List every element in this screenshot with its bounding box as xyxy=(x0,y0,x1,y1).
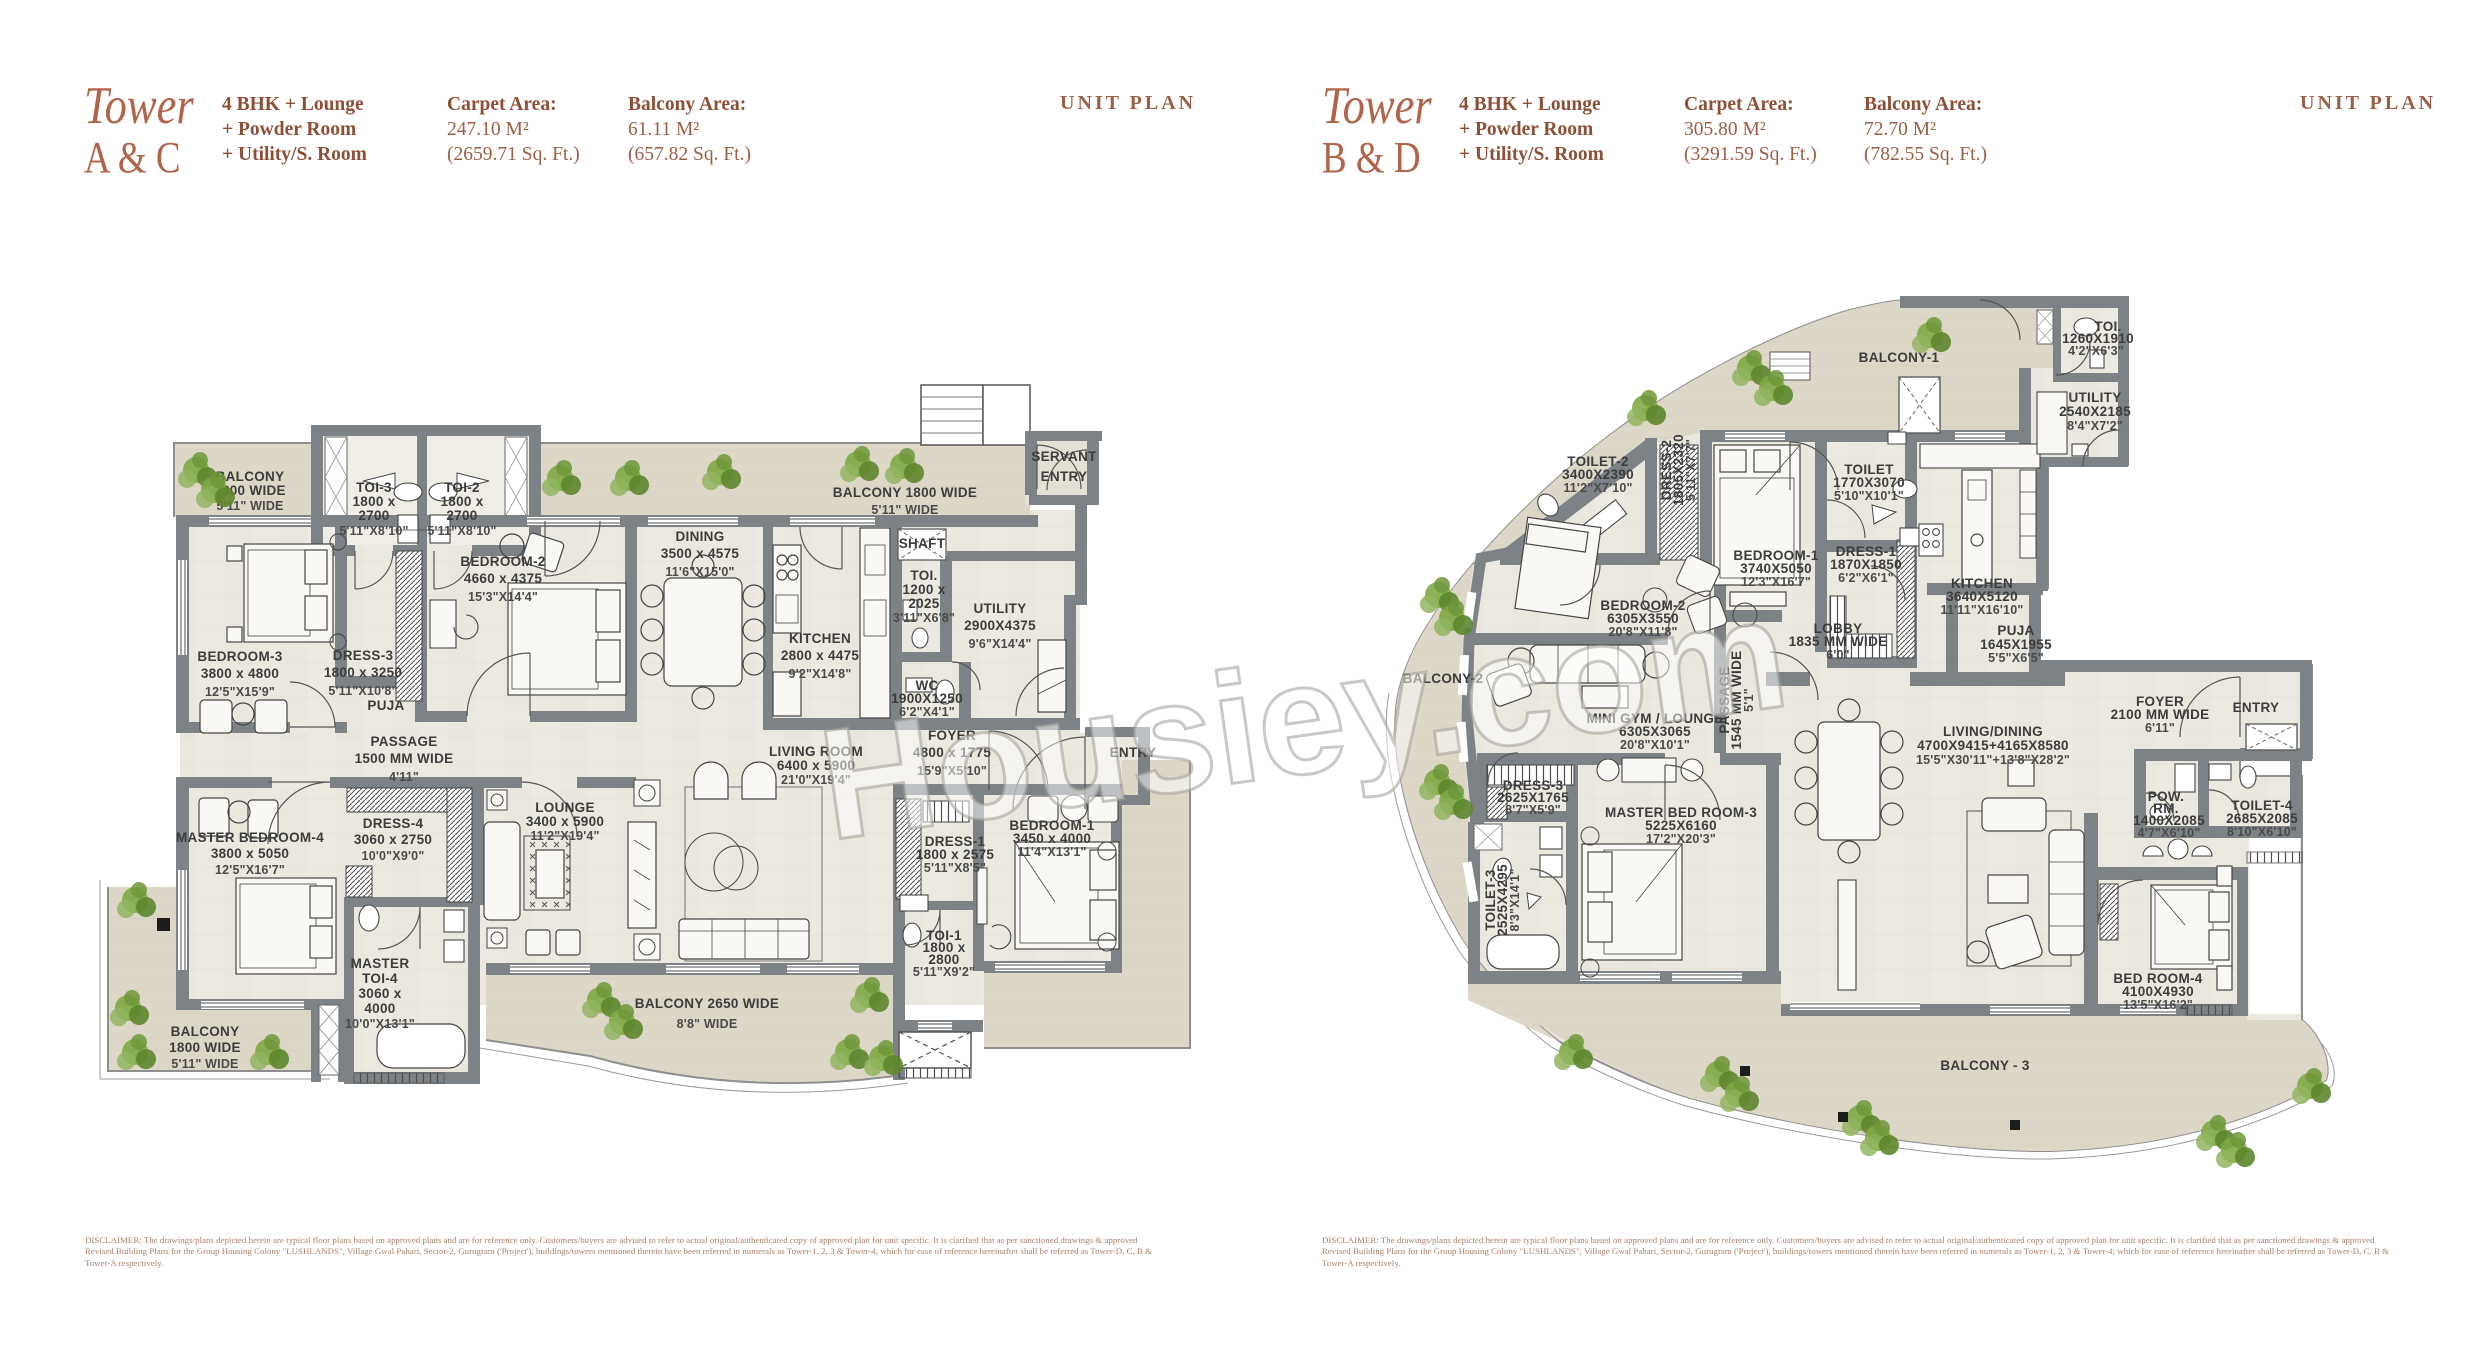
svg-text:MASTER: MASTER xyxy=(351,956,410,971)
svg-text:3800 x 4800: 3800 x 4800 xyxy=(201,666,279,681)
svg-text:1800 x: 1800 x xyxy=(352,494,395,509)
svg-text:10'0"X9'0": 10'0"X9'0" xyxy=(362,849,425,863)
svg-text:5'11"X8'5": 5'11"X8'5" xyxy=(924,861,986,875)
svg-text:1770X3070: 1770X3070 xyxy=(1833,475,1905,490)
svg-text:4'7"X6'10": 4'7"X6'10" xyxy=(2138,826,2201,840)
svg-text:5'11"X10'8": 5'11"X10'8" xyxy=(328,684,397,698)
svg-text:BALCONY: BALCONY xyxy=(171,1024,240,1039)
svg-text:2100 MM WIDE: 2100 MM WIDE xyxy=(2111,707,2210,722)
svg-text:4'2"X6'3": 4'2"X6'3" xyxy=(2068,344,2124,358)
svg-text:1870X1850: 1870X1850 xyxy=(1830,557,1902,572)
svg-text:2900X4375: 2900X4375 xyxy=(964,618,1036,633)
svg-text:4660 x 4375: 4660 x 4375 xyxy=(464,571,543,586)
svg-text:1835 MM WIDE: 1835 MM WIDE xyxy=(1789,634,1888,649)
svg-text:5'11"X8'10": 5'11"X8'10" xyxy=(339,524,408,538)
svg-text:6305X3065: 6305X3065 xyxy=(1619,724,1691,739)
svg-text:DINING: DINING xyxy=(675,529,724,544)
svg-text:2800 x 4475: 2800 x 4475 xyxy=(781,648,860,663)
svg-text:2700: 2700 xyxy=(358,508,389,523)
svg-text:1800 x 2575: 1800 x 2575 xyxy=(916,847,995,862)
svg-text:BALCONY 2650 WIDE: BALCONY 2650 WIDE xyxy=(635,996,779,1011)
svg-text:4100X4930: 4100X4930 xyxy=(2122,984,2194,999)
svg-text:5'10"X10'1": 5'10"X10'1" xyxy=(1834,489,1904,503)
svg-text:12'5"X15'9": 12'5"X15'9" xyxy=(205,685,275,699)
svg-text:12'5"X16'7": 12'5"X16'7" xyxy=(215,863,285,877)
svg-text:6'2"X6'1": 6'2"X6'1" xyxy=(1838,571,1894,585)
svg-text:ENTRY: ENTRY xyxy=(1041,469,1088,484)
svg-text:5'11" WIDE: 5'11" WIDE xyxy=(171,1057,238,1071)
svg-text:TOI-4: TOI-4 xyxy=(362,971,398,986)
svg-text:BALCONY - 3: BALCONY - 3 xyxy=(1940,1058,2030,1073)
svg-text:DRESS-4: DRESS-4 xyxy=(363,816,424,831)
svg-text:21'0"X19'4": 21'0"X19'4" xyxy=(781,773,851,787)
svg-text:TOI-2: TOI-2 xyxy=(444,480,480,495)
svg-text:PASSAGE: PASSAGE xyxy=(370,734,437,749)
svg-text:3400X2390: 3400X2390 xyxy=(1562,467,1634,482)
svg-text:1800 x: 1800 x xyxy=(440,494,483,509)
svg-text:11'2"X19'4": 11'2"X19'4" xyxy=(530,829,599,843)
svg-text:1500 MM WIDE: 1500 MM WIDE xyxy=(355,751,454,766)
svg-text:1800 WIDE: 1800 WIDE xyxy=(169,1040,241,1055)
svg-text:LOUNGE: LOUNGE xyxy=(535,800,595,815)
svg-text:15'3"X14'4": 15'3"X14'4" xyxy=(468,590,538,604)
svg-text:UTILITY: UTILITY xyxy=(973,601,1026,616)
svg-text:9'6"X14'4": 9'6"X14'4" xyxy=(969,637,1032,651)
svg-text:TOI.: TOI. xyxy=(910,568,937,583)
svg-text:12'3"X16'7": 12'3"X16'7" xyxy=(1741,575,1811,589)
svg-text:2025: 2025 xyxy=(908,596,939,611)
svg-text:8'7"X5'9": 8'7"X5'9" xyxy=(1505,803,1561,817)
svg-text:5'1": 5'1" xyxy=(1742,688,1756,712)
svg-text:1200 x: 1200 x xyxy=(902,582,945,597)
svg-text:BALCONY: BALCONY xyxy=(216,469,285,484)
svg-text:11'4"X13'1": 11'4"X13'1" xyxy=(1017,845,1086,859)
svg-text:SERVANT: SERVANT xyxy=(1031,449,1097,464)
svg-text:ENTRY: ENTRY xyxy=(2233,700,2280,715)
svg-text:15'5"X30'11"+13'8"X28'2": 15'5"X30'11"+13'8"X28'2" xyxy=(1916,753,2070,767)
svg-text:1645X1955: 1645X1955 xyxy=(1980,637,2052,652)
svg-text:10'0"X13'1": 10'0"X13'1" xyxy=(345,1017,415,1031)
svg-text:5'5"X6'5": 5'5"X6'5" xyxy=(1988,651,2044,665)
svg-text:2540X2185: 2540X2185 xyxy=(2059,404,2131,419)
svg-text:4700X9415+4165X8580: 4700X9415+4165X8580 xyxy=(1917,738,2069,753)
svg-text:15'9"X5'10": 15'9"X5'10" xyxy=(917,764,987,778)
svg-text:2685X2085: 2685X2085 xyxy=(2226,811,2298,826)
svg-text:20'8"X10'1": 20'8"X10'1" xyxy=(1620,738,1690,752)
svg-text:LIVING ROOM: LIVING ROOM xyxy=(769,744,863,759)
svg-text:3060 x 2750: 3060 x 2750 xyxy=(354,832,432,847)
svg-text:FOYER: FOYER xyxy=(928,728,976,743)
svg-text:8'10"X6'10": 8'10"X6'10" xyxy=(2227,825,2297,839)
svg-text:17'2"X20'3": 17'2"X20'3" xyxy=(1646,832,1716,846)
svg-text:6400 x 5900: 6400 x 5900 xyxy=(777,758,855,773)
svg-text:8'4"X7'2": 8'4"X7'2" xyxy=(2067,419,2123,433)
svg-text:BALCONY-2: BALCONY-2 xyxy=(1403,671,1484,686)
svg-text:6'11": 6'11" xyxy=(2145,721,2175,735)
svg-text:11'11"X16'10": 11'11"X16'10" xyxy=(1941,603,2024,617)
svg-text:PUJA: PUJA xyxy=(1997,623,2034,638)
svg-text:1800 x 3250: 1800 x 3250 xyxy=(324,665,402,680)
svg-text:6'2"X4'1": 6'2"X4'1" xyxy=(899,705,955,719)
svg-text:KITCHEN: KITCHEN xyxy=(789,631,851,646)
svg-text:MASTER BEDROOM-4: MASTER BEDROOM-4 xyxy=(176,830,324,845)
svg-text:11'2"X7'10": 11'2"X7'10" xyxy=(1563,481,1632,495)
svg-text:2700: 2700 xyxy=(446,508,477,523)
svg-text:BALCONY-1: BALCONY-1 xyxy=(1859,350,1940,365)
svg-text:5'11"X7'7": 5'11"X7'7" xyxy=(1684,439,1698,501)
svg-text:UTILITY: UTILITY xyxy=(2068,390,2121,405)
svg-text:4800 x 1775: 4800 x 1775 xyxy=(913,745,992,760)
svg-text:DRESS-3: DRESS-3 xyxy=(333,648,394,663)
svg-text:8'8" WIDE: 8'8" WIDE xyxy=(677,1017,738,1031)
svg-text:BALCONY 1800 WIDE: BALCONY 1800 WIDE xyxy=(833,485,977,500)
svg-text:13'5"X16'2": 13'5"X16'2" xyxy=(2123,998,2193,1012)
svg-text:5225X6160: 5225X6160 xyxy=(1645,818,1717,833)
svg-text:PUJA: PUJA xyxy=(367,698,404,713)
svg-text:BEDROOM-3: BEDROOM-3 xyxy=(197,649,282,664)
svg-text:3800 x 5050: 3800 x 5050 xyxy=(211,846,289,861)
svg-text:5'11"X8'10": 5'11"X8'10" xyxy=(427,524,496,538)
svg-text:3400 x 5900: 3400 x 5900 xyxy=(526,814,604,829)
svg-text:20'8"X11'8": 20'8"X11'8" xyxy=(1608,625,1677,639)
svg-text:6'0": 6'0" xyxy=(1826,648,1850,662)
svg-text:BEDROOM-2: BEDROOM-2 xyxy=(460,554,545,569)
svg-text:SHAFT: SHAFT xyxy=(899,536,946,551)
svg-text:4000: 4000 xyxy=(364,1001,395,1016)
svg-text:TOI-3: TOI-3 xyxy=(356,480,392,495)
svg-text:3640X5120: 3640X5120 xyxy=(1946,589,2018,604)
svg-text:8'3"X14'1": 8'3"X14'1" xyxy=(1508,869,1522,932)
svg-text:11'6"X15'0": 11'6"X15'0" xyxy=(665,565,734,579)
svg-text:3450 x 4000: 3450 x 4000 xyxy=(1013,831,1091,846)
svg-text:5'11" WIDE: 5'11" WIDE xyxy=(871,503,938,517)
svg-text:3060 x: 3060 x xyxy=(358,986,401,1001)
svg-text:3'11"X6'8": 3'11"X6'8" xyxy=(893,611,955,625)
svg-text:ENTRY: ENTRY xyxy=(1110,745,1157,760)
svg-text:1900X1250: 1900X1250 xyxy=(891,691,963,706)
svg-text:9'2"X14'8": 9'2"X14'8" xyxy=(789,667,852,681)
svg-text:3740X5050: 3740X5050 xyxy=(1740,561,1812,576)
svg-text:3500 x 4575: 3500 x 4575 xyxy=(661,546,740,561)
svg-text:LIVING/DINING: LIVING/DINING xyxy=(1943,724,2043,739)
svg-text:4'11": 4'11" xyxy=(389,770,419,784)
svg-text:6305X3550: 6305X3550 xyxy=(1607,611,1679,626)
svg-text:5'11"X9'2": 5'11"X9'2" xyxy=(913,965,975,979)
